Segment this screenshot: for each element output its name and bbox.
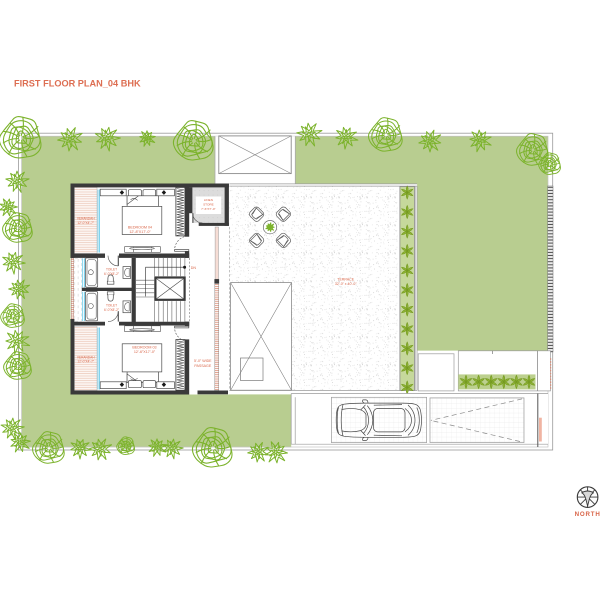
- svg-text:6’-0”X8’-2”: 6’-0”X8’-2”: [104, 308, 119, 312]
- svg-text:12’-8”X17’-0”: 12’-8”X17’-0”: [129, 230, 151, 234]
- svg-text:LINEN: LINEN: [204, 198, 213, 202]
- svg-text:DN: DN: [191, 266, 197, 270]
- svg-text:TERRACE: TERRACE: [337, 278, 354, 282]
- svg-text:NORTH: NORTH: [575, 511, 601, 518]
- svg-text:32’-0” x 40’-0”: 32’-0” x 40’-0”: [335, 282, 357, 286]
- svg-text:12’-0”X4’-7”: 12’-0”X4’-7”: [77, 360, 94, 364]
- svg-text:BEDROOM 03: BEDROOM 03: [132, 345, 156, 349]
- svg-text:12’-0”X4’-7”: 12’-0”X4’-7”: [77, 221, 94, 225]
- svg-text:PASSAGE: PASSAGE: [194, 364, 212, 368]
- svg-text:12’-6”X17’-0”: 12’-6”X17’-0”: [134, 350, 156, 354]
- svg-text:BEDROOM 04: BEDROOM 04: [128, 225, 152, 229]
- svg-text:7’-6”X7’-0”: 7’-6”X7’-0”: [201, 207, 215, 211]
- svg-text:STORE: STORE: [203, 203, 214, 207]
- svg-text:5’-0” WIDE: 5’-0” WIDE: [194, 359, 212, 363]
- svg-text:FIRST FLOOR PLAN_04 BHK: FIRST FLOOR PLAN_04 BHK: [14, 79, 141, 89]
